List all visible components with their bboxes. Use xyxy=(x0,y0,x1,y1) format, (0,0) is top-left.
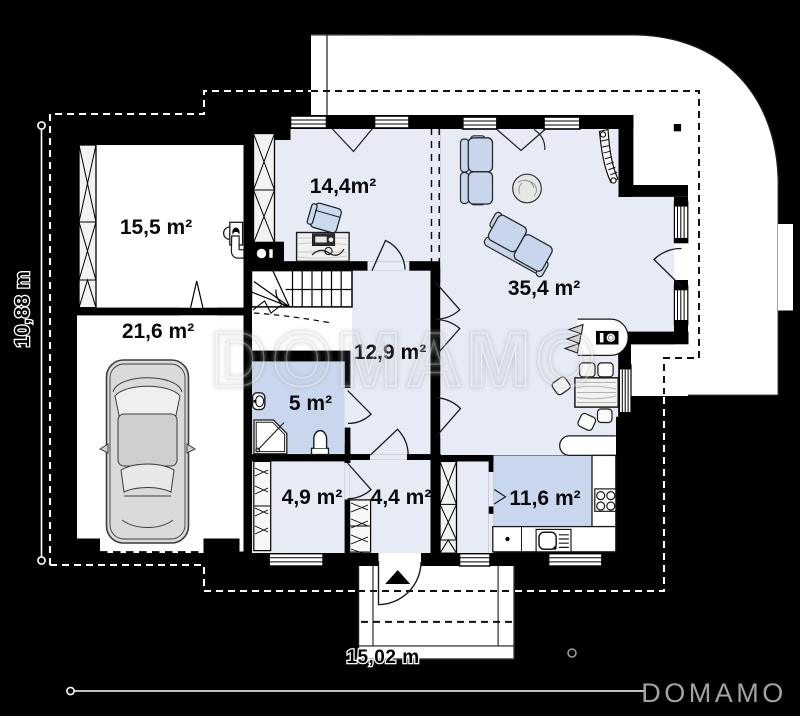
svg-text:10,88 m: 10,88 m xyxy=(12,271,34,348)
svg-text:15,02 m: 15,02 m xyxy=(346,647,419,668)
svg-text:11,6 m²: 11,6 m² xyxy=(509,487,580,510)
svg-text:4,9 m²: 4,9 m² xyxy=(282,486,343,509)
svg-text:15,5 m²: 15,5 m² xyxy=(120,216,192,239)
svg-text:4,4 m²: 4,4 m² xyxy=(371,486,432,509)
svg-text:21,6 m²: 21,6 m² xyxy=(122,320,194,343)
svg-text:14,4m²: 14,4m² xyxy=(310,175,377,198)
svg-text:DOMAMO: DOMAMO xyxy=(211,317,600,403)
svg-text:DOMAMO: DOMAMO xyxy=(641,678,787,708)
svg-text:35,4 m²: 35,4 m² xyxy=(508,277,580,300)
